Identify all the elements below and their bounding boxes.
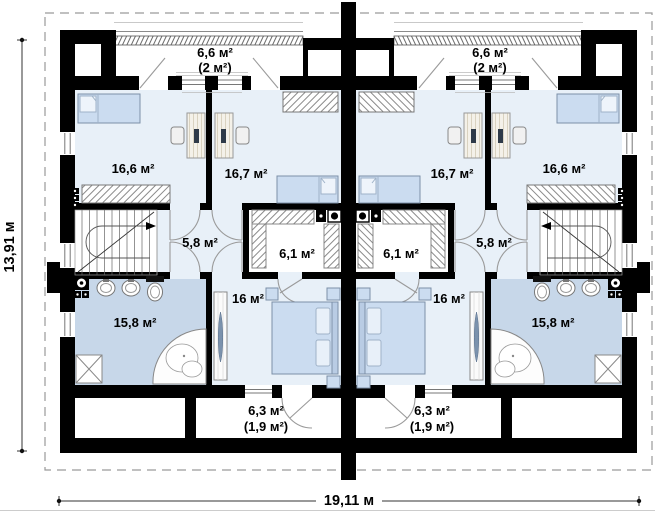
- toilet-icon: [146, 276, 164, 301]
- floor-plan-page: 16,6 м² 16,7 м² 5,8 м² 6,1 м² 15,8 м² 16…: [0, 0, 655, 514]
- label-left-balcony-top-usable: (2 м²): [198, 60, 231, 75]
- label-right-balcony-top-area: 6,6 м²: [472, 45, 508, 60]
- bed-single-icon: [78, 94, 140, 123]
- label-left-balcony-top-area: 6,6 м²: [197, 45, 233, 60]
- wardrobe-icon: [82, 185, 170, 203]
- label-right-balcony-top-usable: (2 м²): [473, 60, 506, 75]
- label-right-bathroom: 15,8 м²: [532, 315, 576, 330]
- label-right-balcony-bottom-usable: (1,9 м²): [410, 419, 454, 434]
- dimension-width-label: 19,11 м: [324, 493, 374, 509]
- bed-double-icon: [266, 288, 340, 388]
- meter-boxes-icon: [71, 188, 79, 208]
- corner-shelf-icon: [76, 355, 102, 383]
- label-right-bedroom3: 16 м²: [433, 291, 466, 306]
- label-right-hall: 5,8 м²: [476, 235, 512, 250]
- wardrobe-mirror-icon: [214, 292, 227, 380]
- label-left-bedroom2: 16,7 м²: [225, 166, 269, 181]
- label-left-hall: 5,8 м²: [182, 235, 218, 250]
- label-right-balcony-bottom-area: 6,3 м²: [414, 403, 450, 418]
- wardrobe-icon: [283, 92, 338, 112]
- label-left-balcony-bottom-usable: (1,9 м²): [244, 419, 288, 434]
- label-left-closet: 6,1 м²: [279, 246, 315, 261]
- label-right-closet: 6,1 м²: [383, 246, 419, 261]
- label-right-bedroom2: 16,7 м²: [431, 166, 475, 181]
- label-left-bedroom1: 16,6 м²: [112, 161, 156, 176]
- label-left-bedroom3: 16 м²: [232, 291, 265, 306]
- floor-plan: 16,6 м² 16,7 м² 5,8 м² 6,1 м² 15,8 м² 16…: [0, 0, 655, 514]
- label-left-bathroom: 15,8 м²: [114, 315, 158, 330]
- dimension-height-label: 13,91 м: [2, 221, 18, 272]
- washer-dryer-icon: [316, 210, 341, 222]
- bed-single-icon: [277, 176, 338, 203]
- label-right-bedroom1: 16,6 м²: [543, 161, 587, 176]
- label-left-balcony-bottom-area: 6,3 м²: [248, 403, 284, 418]
